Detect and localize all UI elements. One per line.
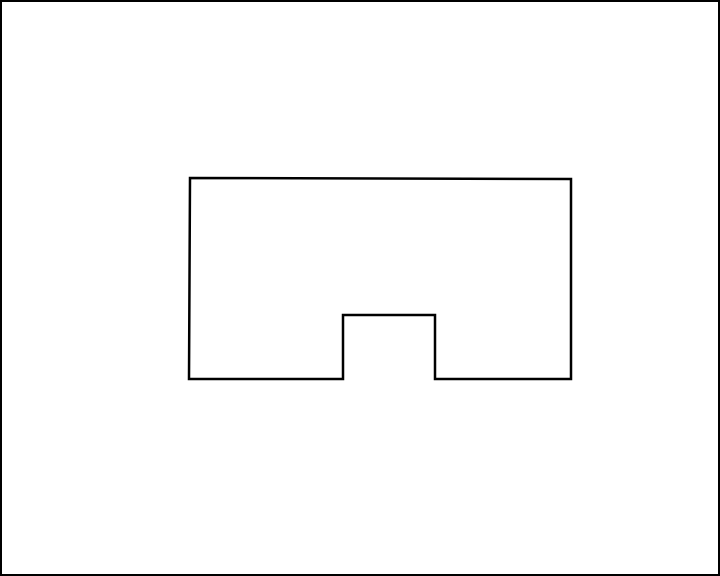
drawing-canvas xyxy=(0,0,720,576)
notched-rectangle-shape xyxy=(189,178,571,379)
image-frame xyxy=(0,0,720,576)
